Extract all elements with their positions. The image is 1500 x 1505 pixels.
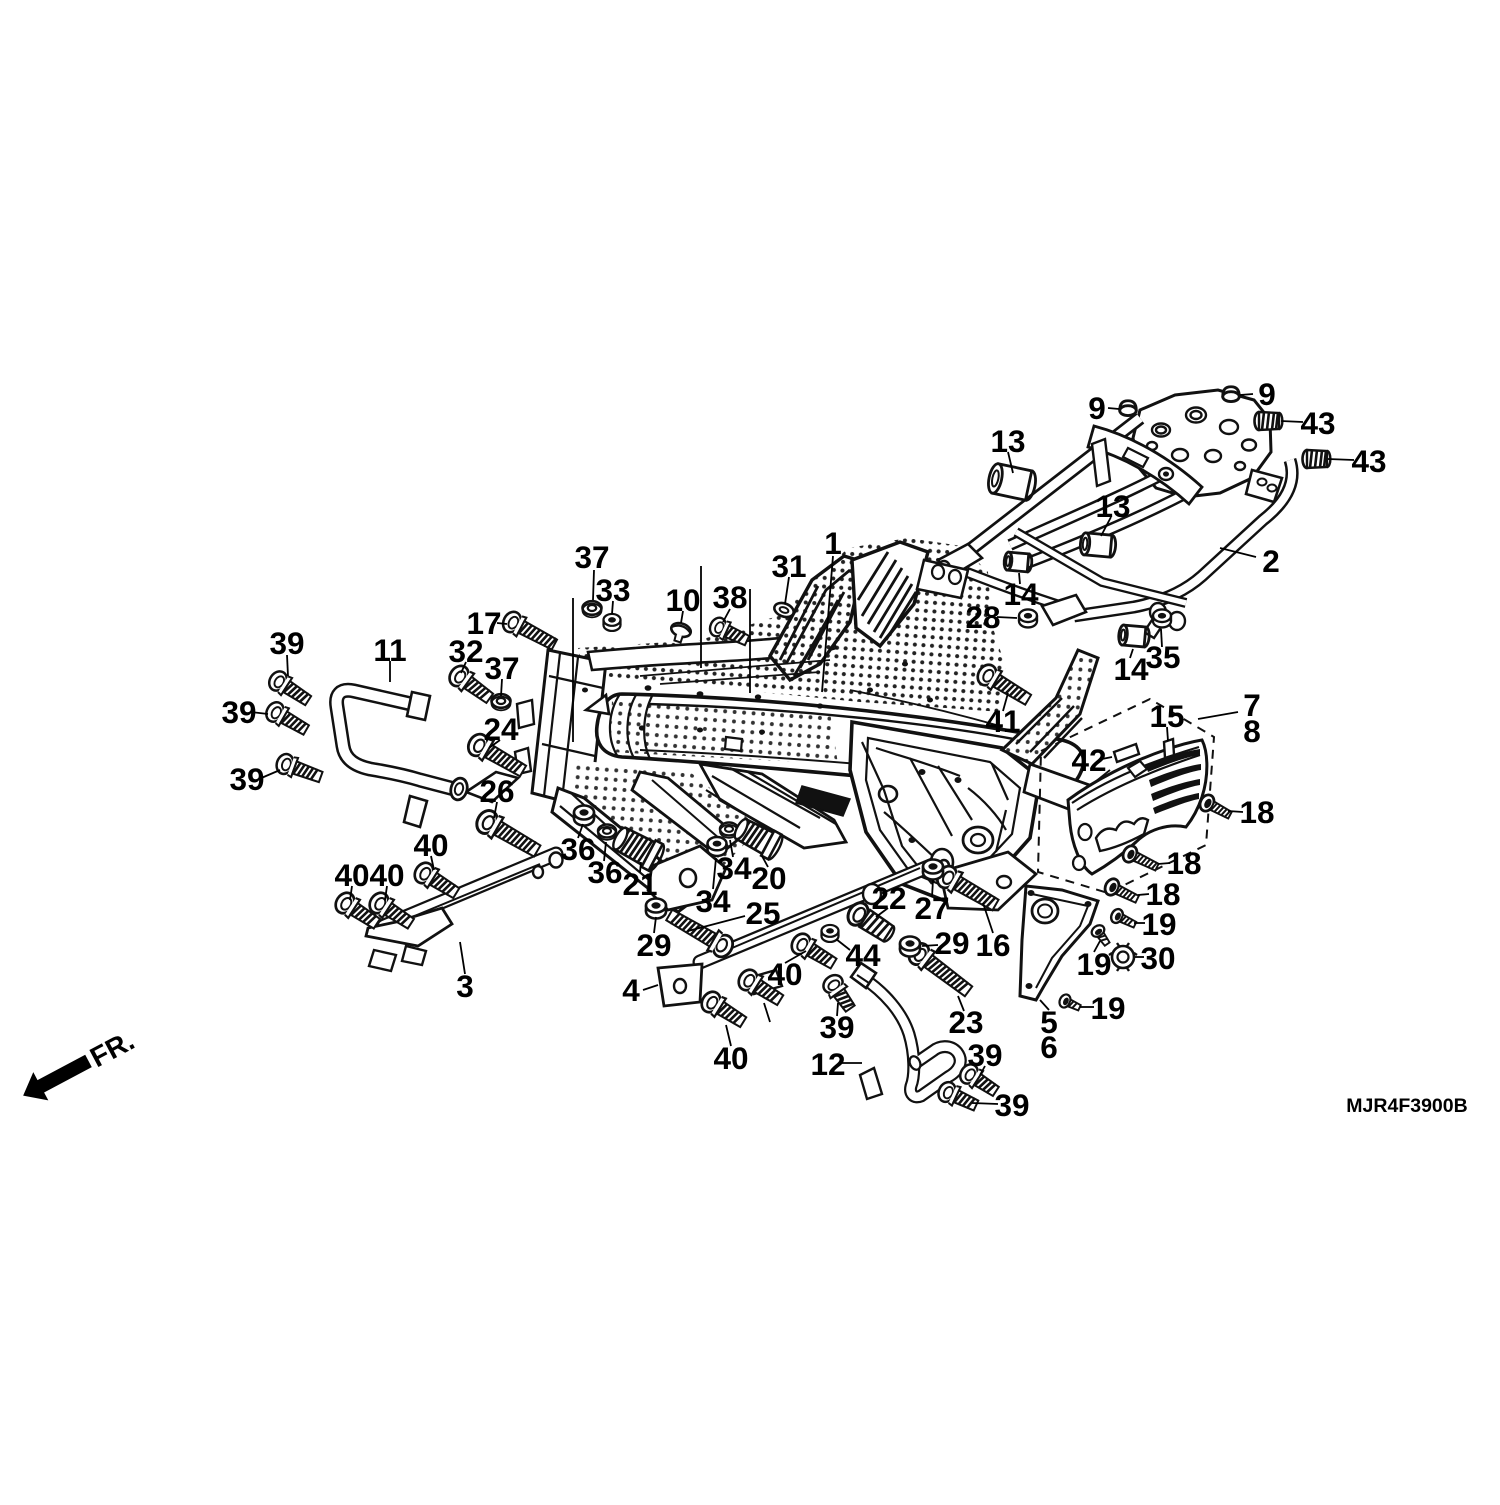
- svg-text:15: 15: [1149, 698, 1184, 734]
- svg-text:44: 44: [845, 937, 881, 973]
- svg-text:34: 34: [716, 850, 752, 886]
- svg-text:16: 16: [975, 927, 1010, 963]
- svg-text:37: 37: [484, 650, 519, 686]
- svg-text:37: 37: [574, 539, 609, 575]
- svg-text:39: 39: [819, 1009, 854, 1045]
- svg-text:30: 30: [1140, 940, 1175, 976]
- svg-text:13: 13: [990, 423, 1025, 459]
- svg-text:3: 3: [456, 968, 474, 1004]
- svg-text:40: 40: [334, 857, 369, 893]
- svg-text:10: 10: [665, 582, 700, 618]
- svg-text:19: 19: [1090, 990, 1125, 1026]
- svg-text:23: 23: [948, 1004, 983, 1040]
- svg-text:34: 34: [695, 883, 731, 919]
- svg-text:24: 24: [483, 711, 519, 747]
- svg-text:36: 36: [587, 854, 622, 890]
- svg-text:18: 18: [1239, 794, 1274, 830]
- svg-text:25: 25: [745, 895, 780, 931]
- svg-text:9: 9: [1258, 376, 1276, 412]
- svg-text:39: 39: [269, 625, 304, 661]
- svg-text:14: 14: [1003, 576, 1039, 612]
- svg-text:39: 39: [967, 1037, 1002, 1073]
- svg-text:31: 31: [771, 548, 806, 584]
- svg-text:1: 1: [824, 525, 842, 561]
- svg-text:13: 13: [1095, 488, 1130, 524]
- svg-text:29: 29: [636, 927, 671, 963]
- svg-text:40: 40: [369, 857, 404, 893]
- svg-text:11: 11: [373, 632, 406, 668]
- svg-text:29: 29: [934, 925, 969, 961]
- svg-text:33: 33: [595, 572, 630, 608]
- svg-text:32: 32: [448, 633, 483, 669]
- svg-text:9: 9: [1088, 390, 1106, 426]
- svg-text:22: 22: [871, 880, 906, 916]
- svg-text:42: 42: [1071, 742, 1106, 778]
- svg-text:40: 40: [767, 956, 802, 992]
- svg-text:14: 14: [1113, 651, 1149, 687]
- svg-text:2: 2: [1262, 543, 1280, 579]
- svg-text:6: 6: [1040, 1029, 1058, 1065]
- svg-text:28: 28: [965, 599, 1000, 635]
- svg-text:26: 26: [479, 773, 514, 809]
- svg-text:MJR4F3900B: MJR4F3900B: [1346, 1095, 1467, 1117]
- svg-text:39: 39: [994, 1087, 1029, 1123]
- svg-text:19: 19: [1141, 906, 1176, 942]
- svg-text:39: 39: [221, 694, 256, 730]
- svg-text:40: 40: [413, 827, 448, 863]
- svg-text:4: 4: [622, 972, 640, 1008]
- svg-text:40: 40: [713, 1040, 748, 1076]
- svg-text:39: 39: [229, 761, 264, 797]
- svg-text:27: 27: [914, 890, 949, 926]
- svg-text:41: 41: [985, 703, 1020, 739]
- svg-text:21: 21: [622, 866, 657, 902]
- svg-text:20: 20: [751, 860, 786, 896]
- svg-text:38: 38: [712, 579, 747, 615]
- svg-text:35: 35: [1145, 639, 1180, 675]
- svg-text:19: 19: [1076, 946, 1111, 982]
- svg-text:43: 43: [1351, 443, 1386, 479]
- svg-text:43: 43: [1300, 405, 1335, 441]
- svg-text:12: 12: [810, 1046, 845, 1082]
- svg-text:8: 8: [1243, 713, 1261, 749]
